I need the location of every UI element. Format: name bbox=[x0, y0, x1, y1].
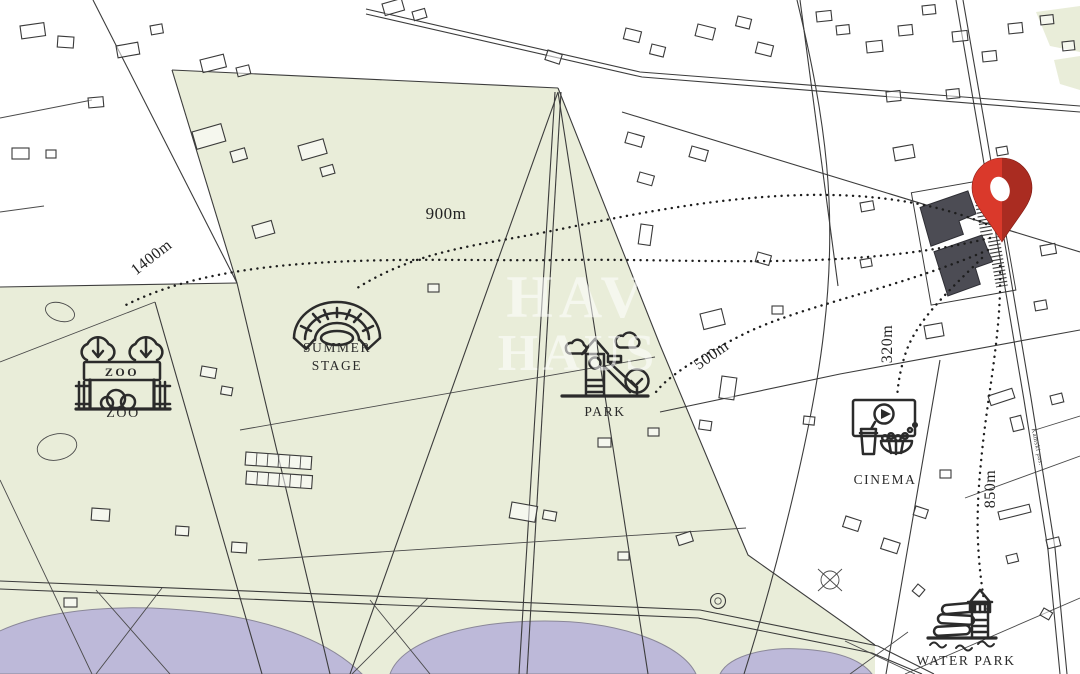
cinema-label: CINEMA bbox=[854, 472, 917, 488]
distance-summer-stage: 900m bbox=[426, 204, 467, 224]
cinema-icon[interactable] bbox=[853, 400, 917, 454]
distance-cinema: 320m bbox=[879, 325, 897, 363]
summer-stage-label-line1: SUMMER bbox=[303, 340, 371, 356]
zoo-label: ZOO bbox=[106, 406, 140, 422]
zoo-sign-text: ZOO bbox=[105, 365, 139, 379]
summer-stage-label-line2: STAGE bbox=[312, 358, 362, 374]
map-canvas[interactable]: ZOO bbox=[0, 0, 1080, 674]
route-water-park-dotted bbox=[978, 266, 1001, 612]
water-park-icon[interactable] bbox=[928, 590, 996, 651]
distance-water-park: 850m bbox=[982, 470, 1000, 508]
park-label: PARK bbox=[584, 404, 625, 420]
water-park-label: WATER PARK bbox=[916, 653, 1015, 669]
